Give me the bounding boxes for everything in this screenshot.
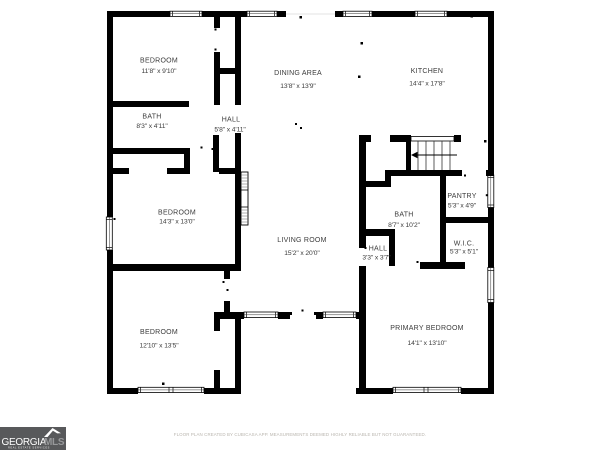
- svg-text:8'7" x 10'2": 8'7" x 10'2": [388, 222, 420, 229]
- svg-text:14'3" x 13'0": 14'3" x 13'0": [159, 218, 195, 225]
- svg-text:HALL: HALL: [222, 117, 241, 124]
- svg-text:13'8" x 13'9": 13'8" x 13'9": [280, 83, 316, 90]
- svg-text:8'3" x 4'11": 8'3" x 4'11": [136, 123, 168, 130]
- svg-text:FLOOR PLAN CREATED BY CUBICASA: FLOOR PLAN CREATED BY CUBICASA APP. MEAS…: [174, 432, 426, 437]
- svg-text:5'3" x 5'1": 5'3" x 5'1": [450, 249, 479, 256]
- svg-text:BEDROOM: BEDROOM: [140, 329, 178, 336]
- svg-text:DINING AREA: DINING AREA: [274, 70, 322, 77]
- svg-text:KITCHEN: KITCHEN: [411, 68, 443, 75]
- svg-text:W.I.C.: W.I.C.: [454, 241, 475, 248]
- svg-text:15'2" x 20'0": 15'2" x 20'0": [284, 250, 320, 257]
- svg-text:BEDROOM: BEDROOM: [140, 58, 178, 65]
- svg-text:PANTRY: PANTRY: [447, 193, 476, 200]
- svg-text:14'4" x 17'8": 14'4" x 17'8": [409, 81, 445, 88]
- svg-text:12'10" x 13'5": 12'10" x 13'5": [140, 342, 180, 349]
- svg-text:11'8" x 9'10": 11'8" x 9'10": [142, 68, 178, 75]
- svg-text:5'8" x 4'11": 5'8" x 4'11": [214, 127, 246, 134]
- svg-text:BATH: BATH: [142, 113, 161, 120]
- svg-text:BATH: BATH: [394, 212, 413, 219]
- svg-text:BEDROOM: BEDROOM: [158, 210, 196, 217]
- svg-text:REAL ESTATE SERVICES: REAL ESTATE SERVICES: [8, 446, 50, 450]
- svg-text:LIVING ROOM: LIVING ROOM: [277, 237, 326, 244]
- svg-text:5'3" x 4'9": 5'3" x 4'9": [448, 203, 477, 210]
- svg-text:3'3" x 3'7": 3'3" x 3'7": [362, 255, 391, 262]
- svg-text:PRIMARY BEDROOM: PRIMARY BEDROOM: [390, 325, 464, 332]
- svg-text:HALL: HALL: [369, 245, 388, 252]
- svg-text:14'1" x 13'10": 14'1" x 13'10": [408, 340, 448, 347]
